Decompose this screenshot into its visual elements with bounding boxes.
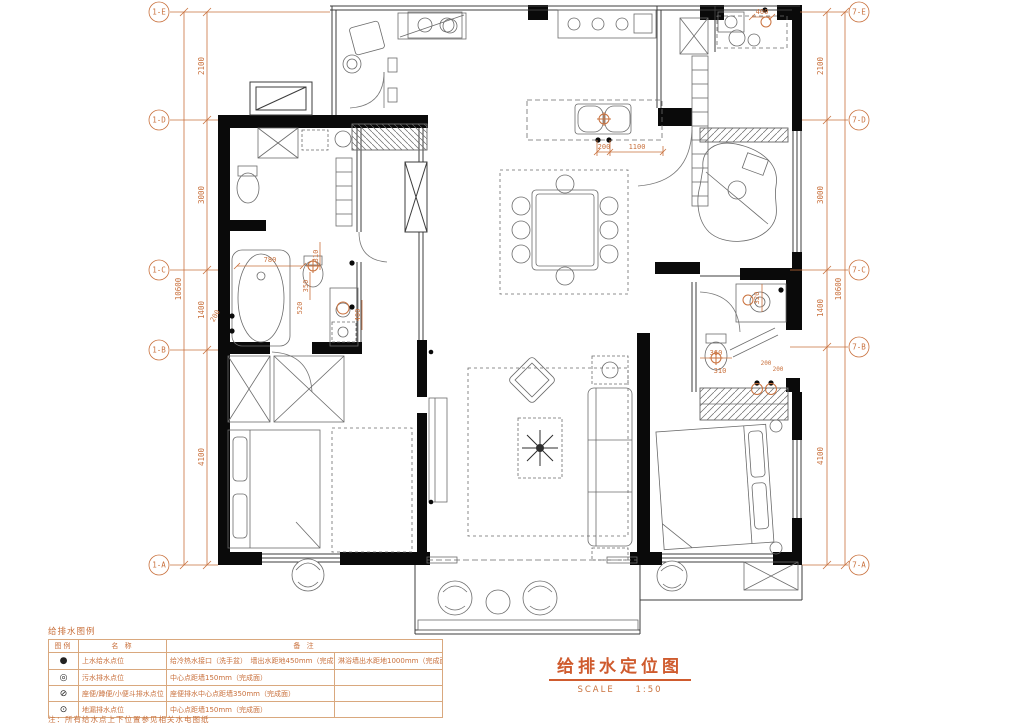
supply-point-symbol: ● [49,653,79,670]
wall-outlines [250,6,802,634]
legend-remark2 [335,686,443,702]
legend-header-name: 名 称 [79,640,167,653]
grid-bubble-label: 1-D [152,116,166,125]
legend-remark2 [335,702,443,718]
annotation: 200 [598,143,611,151]
grid-bubble-label: 7-D [852,116,866,125]
dim-label: 10600 [834,277,843,300]
plant-icon [522,430,558,466]
legend-note: 注：所有给水点上下位置参见相关水电图纸 [48,714,210,724]
legend-header-row: 图例 名 称 备 注 [49,640,443,653]
grid-bubble-label: 1-E [152,8,166,17]
floorplan-sheet: 1-E 1-D 1-C 1-B 1-A 2100 3000 1400 4100 … [0,0,1024,724]
dim-label: 3000 [197,185,206,204]
annotation-text: 200 1100 780 310 350 520 400 200 320 360… [209,8,784,375]
dim-label: 1400 [197,300,206,319]
annotation: 200 [761,360,772,367]
drawing-scale: SCALE 1:50 [520,685,720,695]
legend-row: ◎ 污水排水点位 中心点距墙150mm（完成面） [49,670,443,686]
legend-remark2 [335,670,443,686]
scale-label: SCALE [577,685,614,695]
annotation: 400 [756,8,769,16]
dim-label: 2100 [816,56,825,75]
annotation: 310 [714,367,727,375]
annotation: 320 [753,292,761,305]
legend-panel: 给排水图例 图例 名 称 备 注 ● 上水给水点位 给冷热水接口（洗手盆） 墙出… [40,625,443,718]
legend-remark: 中心点距墙150mm（完成面） [167,670,335,686]
scale-value: 1:50 [635,685,662,695]
legend-table: 图例 名 称 备 注 ● 上水给水点位 给冷热水接口（洗手盆） 墙出水距地450… [48,639,443,718]
annotation: 310 [312,250,320,263]
dim-label: 2100 [197,56,206,75]
annotation: 1100 [629,143,646,151]
legend-name: 座便/蹲便/小便斗排水点位 [79,686,167,702]
furniture [228,10,798,630]
drawing-title: 给排水定位图 [549,652,691,681]
annotation: 400 [354,309,362,322]
dim-label: 4100 [197,447,206,466]
legend-remark2: 淋浴墙出水距地1000mm（完成面） [335,653,443,670]
grid-bubble-label: 1-A [152,561,166,570]
grid-bubble-label: 7-A [852,561,866,570]
grid-bubble-label: 7-B [852,343,866,352]
legend-row: ⊘ 座便/蹲便/小便斗排水点位 座便排水中心点距墙350mm（完成面） [49,686,443,702]
annotation: 780 [264,256,277,264]
legend-row: ● 上水给水点位 给冷热水接口（洗手盆） 墙出水距地450mm（完成面） 淋浴墙… [49,653,443,670]
legend-header-symbol: 图例 [49,640,79,653]
dim-label: 4100 [816,446,825,465]
dimension-text-left: 1-E 1-D 1-C 1-B 1-A 2100 3000 1400 4100 … [152,8,206,570]
annotation-lines [234,14,775,358]
dim-label: 3000 [816,185,825,204]
grid-bubble-label: 1-C [152,266,166,275]
dim-label: 10600 [174,277,183,300]
annotation: 200 [773,366,784,373]
grid-bubble-label: 1-B [152,346,166,355]
legend-name: 上水给水点位 [79,653,167,670]
toilet-drain-symbol: ⊘ [49,686,79,702]
annotation: 350 [302,280,310,293]
legend-remark: 给冷热水接口（洗手盆） 墙出水距地450mm（完成面） [167,653,335,670]
grid-bubble-label: 7-E [852,8,866,17]
annotation: 360 [710,349,723,357]
annotation: 520 [296,302,304,315]
grid-bubble-label: 7-C [852,266,866,275]
floorplan-drawing: 1-E 1-D 1-C 1-B 1-A 2100 3000 1400 4100 … [0,0,1024,724]
legend-remark: 座便排水中心点距墙350mm（完成面） [167,686,335,702]
dim-label: 1400 [816,298,825,317]
sewage-point-symbol: ◎ [49,670,79,686]
dimension-text-right: 7-E 7-D 7-C 7-B 7-A 2100 3000 1400 4100 … [816,8,866,570]
legend-name: 污水排水点位 [79,670,167,686]
legend-title: 给排水图例 [48,625,443,637]
title-block: 给排水定位图 SCALE 1:50 [520,652,720,695]
legend-header-remark: 备 注 [167,640,443,653]
